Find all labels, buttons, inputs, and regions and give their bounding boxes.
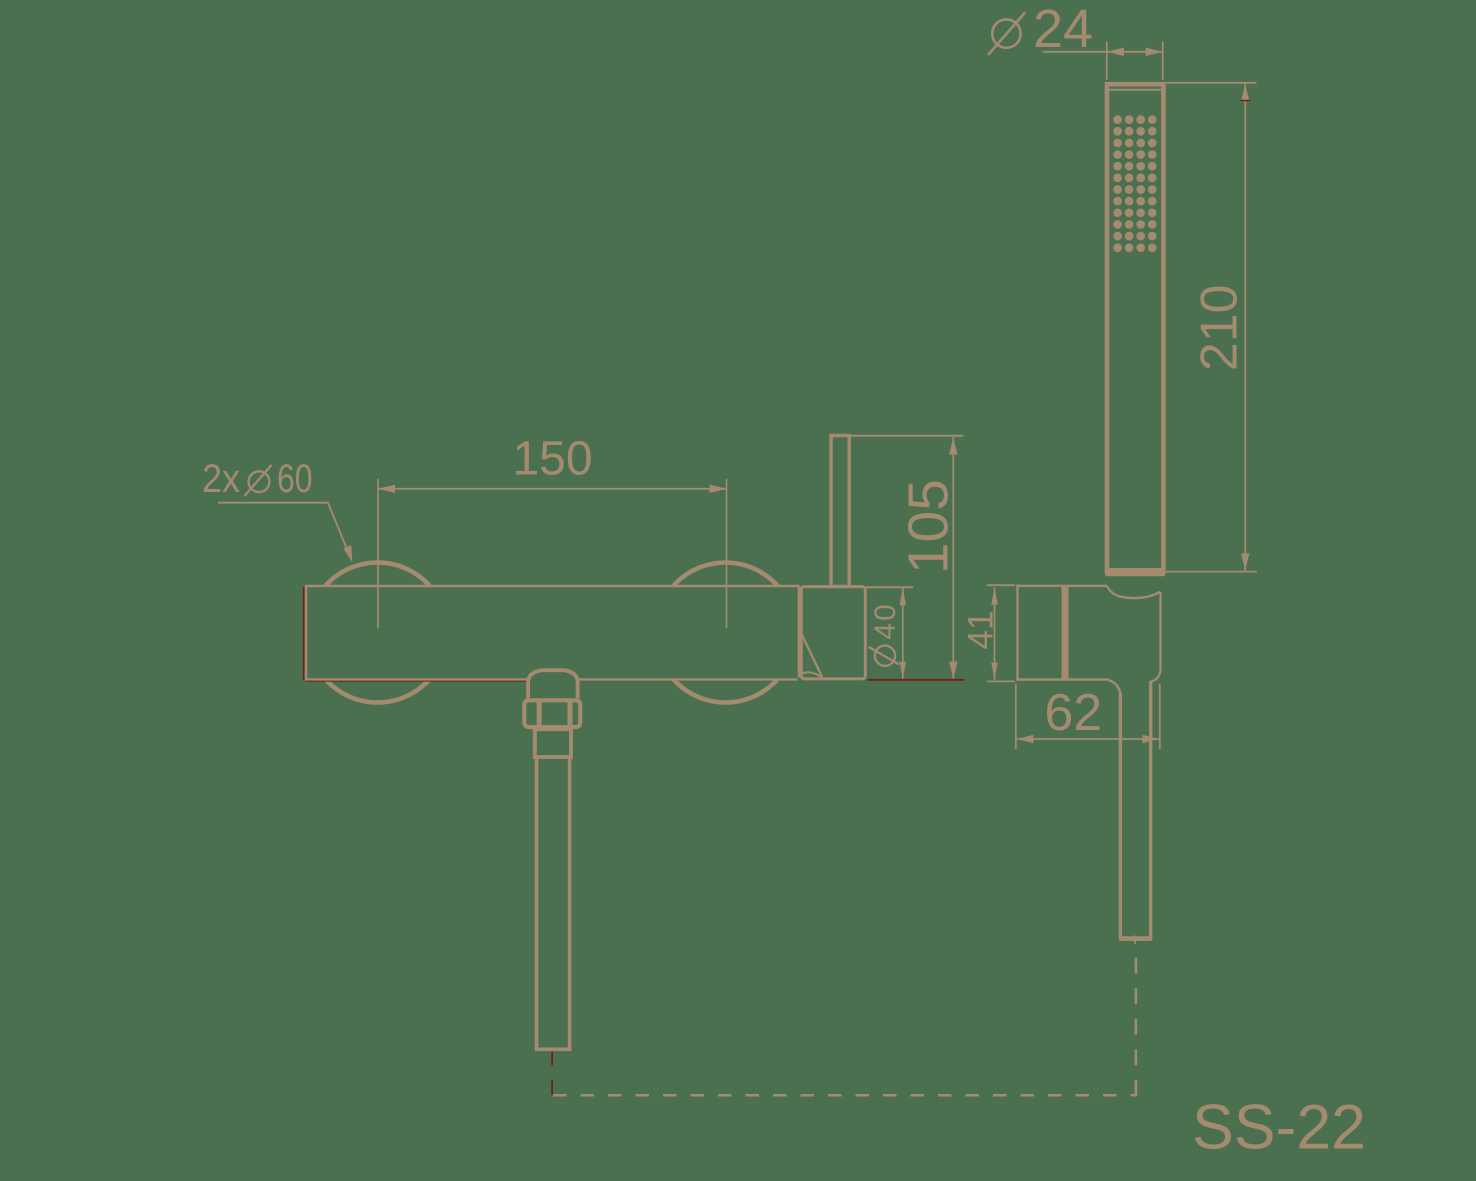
svg-text:40: 40	[869, 602, 902, 639]
svg-text:210: 210	[1191, 284, 1249, 371]
svg-text:150: 150	[512, 433, 592, 486]
svg-text:24: 24	[1033, 0, 1093, 59]
svg-text:62: 62	[1044, 684, 1102, 742]
svg-text:41: 41	[962, 611, 1001, 650]
svg-text:2x: 2x	[202, 457, 240, 501]
svg-text:SS-22: SS-22	[1192, 1093, 1366, 1163]
svg-text:60: 60	[277, 457, 313, 501]
svg-text:105: 105	[896, 479, 960, 574]
